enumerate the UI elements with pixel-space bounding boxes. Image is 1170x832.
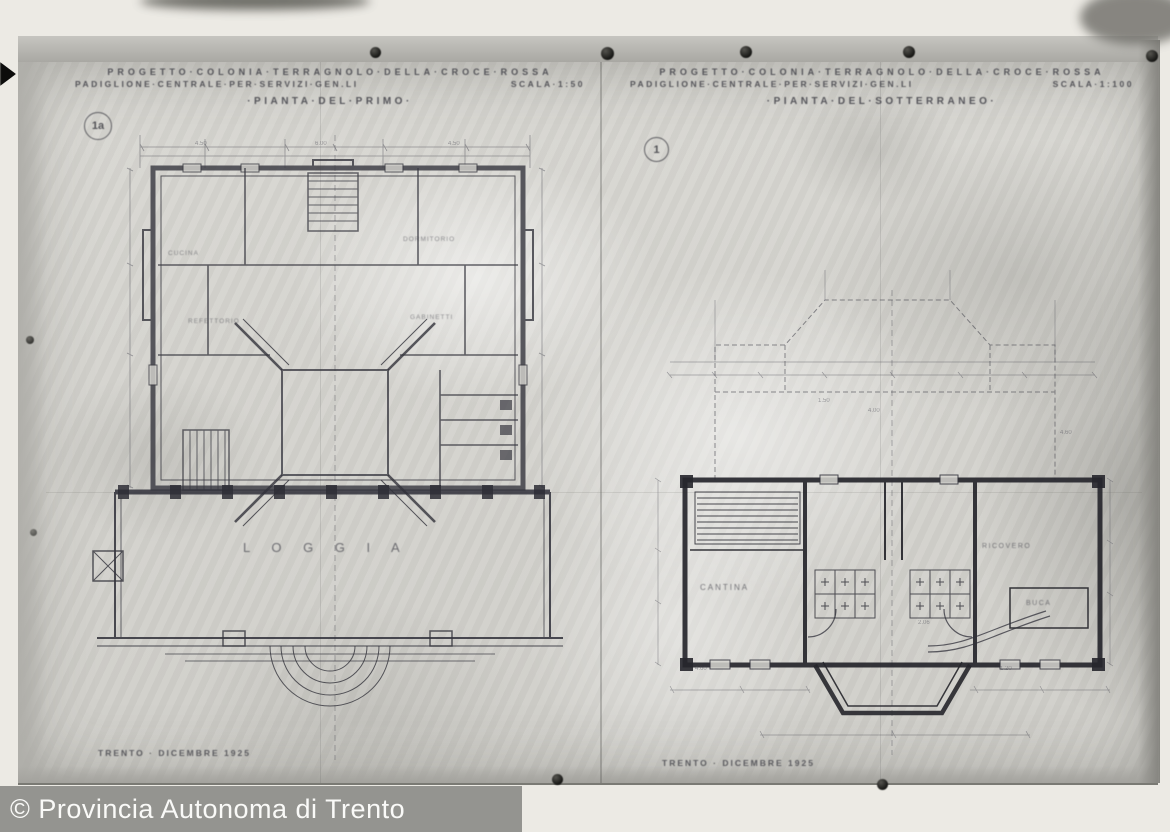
- dimension-label: 6.00: [315, 141, 327, 147]
- thumbtack-icon: [552, 774, 563, 785]
- copyright-text: © Provincia Autonoma di Trento: [10, 794, 405, 825]
- right-plan-caption: ·PIANTA·DEL·SOTTERRANEO·: [618, 96, 1146, 107]
- room-label-ricovero: RICOVERO: [982, 543, 1031, 550]
- dimension-label: 4.00: [868, 408, 880, 414]
- dimension-label: 4.50: [195, 141, 207, 147]
- room-label: REFETTORIO: [188, 318, 240, 325]
- room-label: CUCINA: [168, 250, 199, 257]
- left-plan-caption: ·PIANTA·DEL·PRIMO·: [62, 96, 598, 107]
- copyright-watermark: © Provincia Autonoma di Trento: [0, 786, 522, 832]
- left-plan-drawing-first-floor: [45, 115, 600, 775]
- dimension-label: 4.50: [448, 141, 460, 147]
- thumbtack-icon: [1146, 50, 1158, 62]
- right-plan-drawing-basement: [610, 130, 1155, 780]
- sheet-separation-fold: [600, 62, 602, 783]
- thumbtack-icon: [740, 46, 752, 58]
- thumbtack-icon: [601, 47, 614, 60]
- dimension-label: 2.06: [918, 620, 930, 626]
- left-paper-shadow: [18, 62, 46, 783]
- right-sheet-date: TRENTO · DICEMBRE 1925: [662, 758, 815, 768]
- film-edge-notch: [0, 62, 16, 86]
- dimension-label: 1.20: [1000, 666, 1012, 672]
- dimension-label: 4.60: [695, 666, 707, 672]
- thumbtack-icon: [30, 529, 37, 536]
- dimension-label: 4.60: [1060, 430, 1072, 436]
- room-label-cantina: CANTINA: [700, 583, 749, 592]
- right-sheet-scale: SCALA·1:100: [1053, 79, 1134, 89]
- room-label: GABINETTI: [410, 314, 453, 321]
- left-sheet-subtitle-line: PADIGLIONE·CENTRALE·PER·SERVIZI·GEN.LI S…: [75, 79, 585, 89]
- archival-photo-architectural-plans: PROGETTO·COLONIA·TERRAGNOLO·DELLA·CROCE·…: [0, 0, 1170, 832]
- thumbtack-icon: [26, 336, 34, 344]
- left-sheet-date: TRENTO · DICEMBRE 1925: [98, 748, 251, 758]
- left-sheet-title: PROGETTO·COLONIA·TERRAGNOLO·DELLA·CROCE·…: [62, 67, 598, 77]
- thumbtack-icon: [903, 46, 915, 58]
- room-label-buca: BUCA: [1026, 600, 1051, 607]
- top-stain: [140, 0, 370, 10]
- photo-top-edge: [18, 36, 1158, 64]
- dimension-label: 1.50: [818, 398, 830, 404]
- loggia-label: L O G G I A: [243, 540, 409, 555]
- right-sheet-title: PROGETTO·COLONIA·TERRAGNOLO·DELLA·CROCE·…: [618, 67, 1146, 77]
- right-sheet-title2a: PADIGLIONE·CENTRALE·PER·SERVIZI·GEN.LI: [630, 79, 914, 89]
- right-sheet-subtitle-line: PADIGLIONE·CENTRALE·PER·SERVIZI·GEN.LI S…: [630, 79, 1134, 89]
- left-sheet-title2a: PADIGLIONE·CENTRALE·PER·SERVIZI·GEN.LI: [75, 79, 359, 89]
- thumbtack-icon: [877, 779, 888, 790]
- room-label: DORMITORIO: [403, 236, 455, 243]
- thumbtack-icon: [370, 47, 381, 58]
- left-sheet-scale: SCALA·1:50: [511, 79, 585, 89]
